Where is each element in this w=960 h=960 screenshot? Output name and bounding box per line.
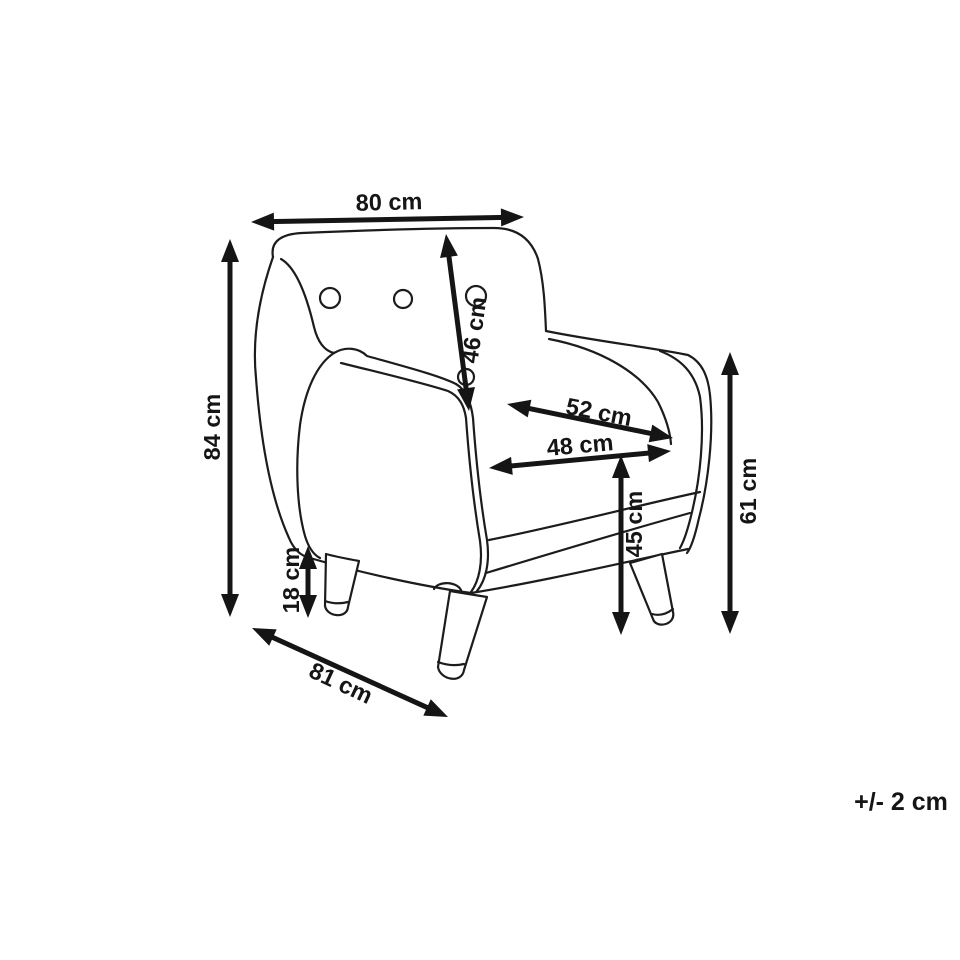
chair-left-arm-top-inner [341, 363, 466, 418]
backrest-button-2 [394, 290, 412, 308]
dimension-arrowhead [423, 699, 448, 717]
dimension-arrow-shaft [269, 217, 506, 221]
diagram-page: 80 cm46 cm84 cm52 cm48 cm45 cm61 cm18 cm… [0, 0, 960, 960]
dimension-arrowhead [252, 628, 277, 646]
chair-front-left-leg [325, 554, 359, 615]
dimension-overall-width: 80 cm [251, 188, 524, 230]
dimension-label-leg-height: 18 cm [278, 547, 304, 614]
dimension-leg-height: 18 cm [278, 546, 317, 618]
dimension-arrowhead [612, 612, 630, 635]
dimension-overall-depth: 81 cm [252, 628, 448, 717]
dimension-arrowhead [721, 611, 739, 634]
chair-left-outer-edge [255, 257, 310, 558]
tolerance-note: +/- 2 cm [854, 788, 948, 816]
chair-left-arm-front-edge [297, 353, 334, 558]
dimension-seat-height: 45 cm [612, 455, 647, 635]
dimension-arrowhead [221, 239, 239, 262]
dimension-arrowhead [440, 234, 458, 258]
dimension-label-side-height: 61 cm [735, 458, 761, 525]
chair-seat-skirt-line [489, 492, 700, 540]
dimension-arrowhead [647, 444, 671, 462]
dimension-arrowhead [251, 213, 274, 231]
chair-front-right-leg [438, 591, 487, 679]
dimension-arrowhead [501, 208, 524, 226]
dimension-arrowhead [489, 457, 513, 475]
dimension-diagram: 80 cm46 cm84 cm52 cm48 cm45 cm61 cm18 cm… [0, 0, 960, 960]
dimension-backrest-height: 46 cm [440, 234, 491, 411]
dimension-arrowhead [507, 400, 531, 418]
chair-left-arm-top-edge [334, 349, 473, 418]
dimension-label-seat-height: 45 cm [621, 491, 647, 558]
dimension-label-backrest-height: 46 cm [456, 295, 491, 365]
dimension-seat-width: 48 cm [489, 429, 671, 475]
dimension-layer: 80 cm46 cm84 cm52 cm48 cm45 cm61 cm18 cm… [199, 188, 761, 717]
chair-seat-front-piping-2 [466, 418, 481, 592]
chair-right-arm-piping [660, 351, 702, 548]
dimension-label-overall-width: 80 cm [355, 188, 422, 216]
dimension-side-height: 61 cm [721, 352, 761, 634]
chair-back-top-edge [273, 228, 546, 331]
dimension-label-overall-height: 84 cm [199, 394, 225, 461]
backrest-button-1 [320, 288, 340, 308]
dimension-label-overall-depth: 81 cm [305, 657, 376, 709]
dimension-arrowhead [721, 352, 739, 375]
dimension-overall-height: 84 cm [199, 239, 239, 617]
dimension-arrowhead [221, 594, 239, 617]
